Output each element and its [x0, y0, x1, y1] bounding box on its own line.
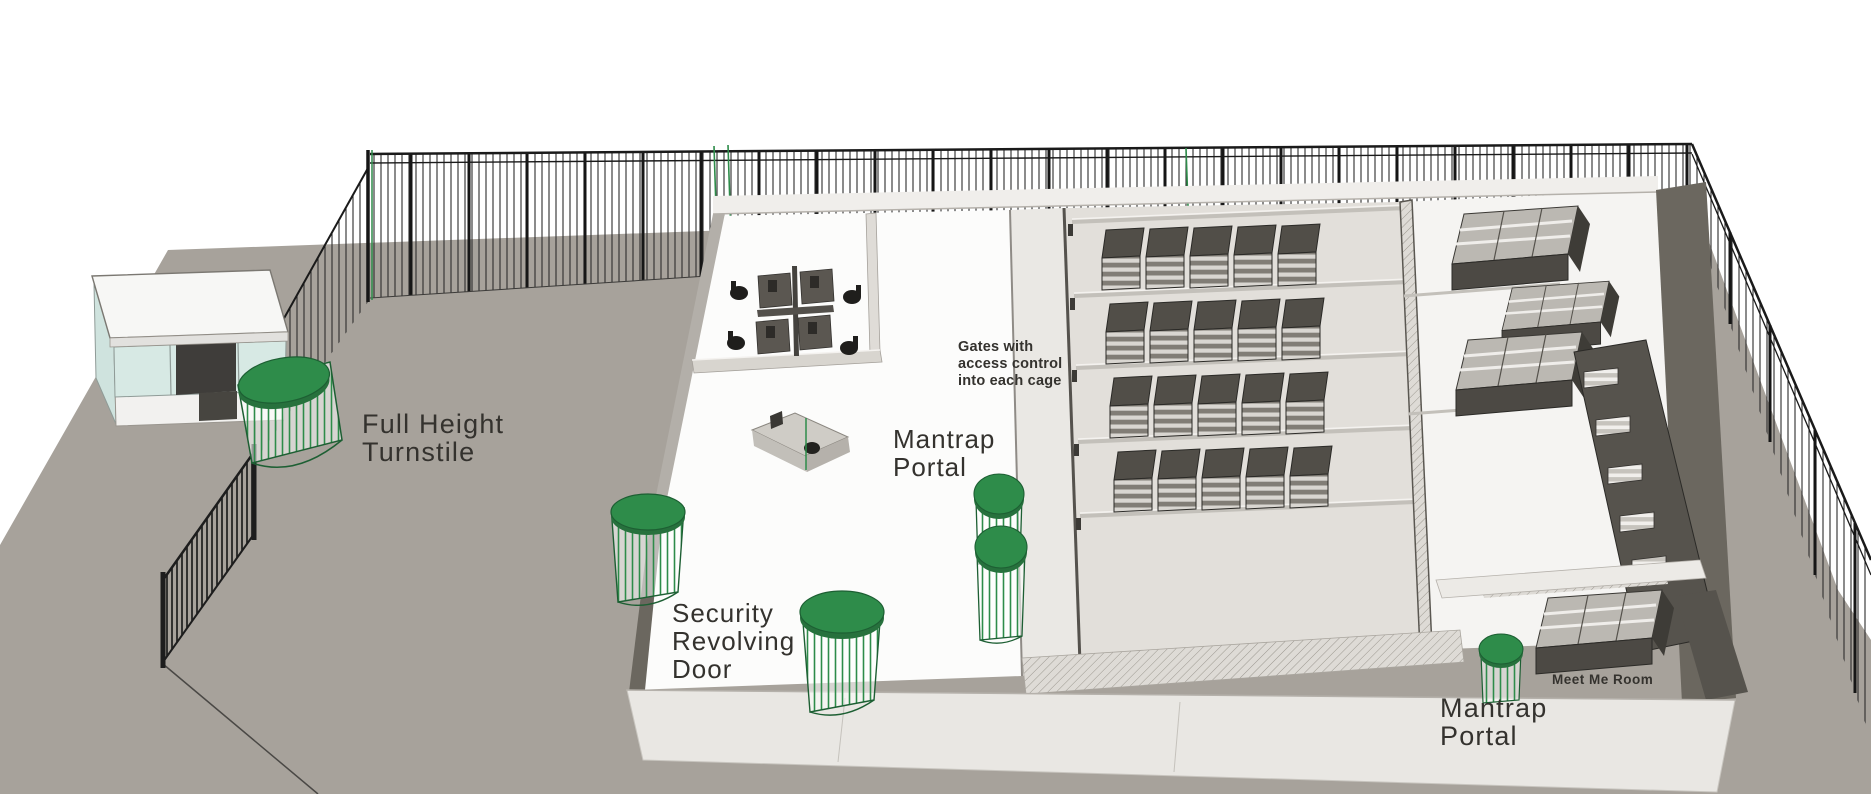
booth-door: [199, 391, 237, 421]
server-rack-row: [1114, 446, 1332, 512]
monitor: [808, 322, 817, 334]
site-plan-stage: Full Height Turnstile Security Revolving…: [0, 0, 1871, 794]
monitor: [766, 326, 775, 338]
portal-cap: [974, 474, 1024, 514]
chair-back: [731, 281, 736, 293]
portal-cap: [975, 526, 1027, 568]
security-revolving-door-1: [611, 494, 685, 605]
monitor: [810, 276, 819, 288]
chair-back: [853, 336, 858, 348]
server-rack-row: [1110, 372, 1328, 438]
chair-back: [856, 285, 861, 297]
site-plan-canvas: Full Height Turnstile Security Revolving…: [0, 0, 1871, 794]
portal-cap: [1479, 634, 1523, 664]
server-rack-row: [1102, 224, 1320, 290]
monitor: [768, 280, 777, 292]
chair-back: [728, 331, 733, 343]
door-cap: [800, 591, 884, 633]
server-rack-row: [1106, 298, 1324, 364]
booth-roof: [92, 270, 288, 338]
label-meet-me-room: Meet Me Room: [1552, 672, 1653, 687]
mantrap-portal-entry: [974, 474, 1027, 643]
door-cap: [611, 494, 685, 530]
security-revolving-door-2: [800, 591, 884, 715]
booth-window-dark: [176, 341, 236, 395]
